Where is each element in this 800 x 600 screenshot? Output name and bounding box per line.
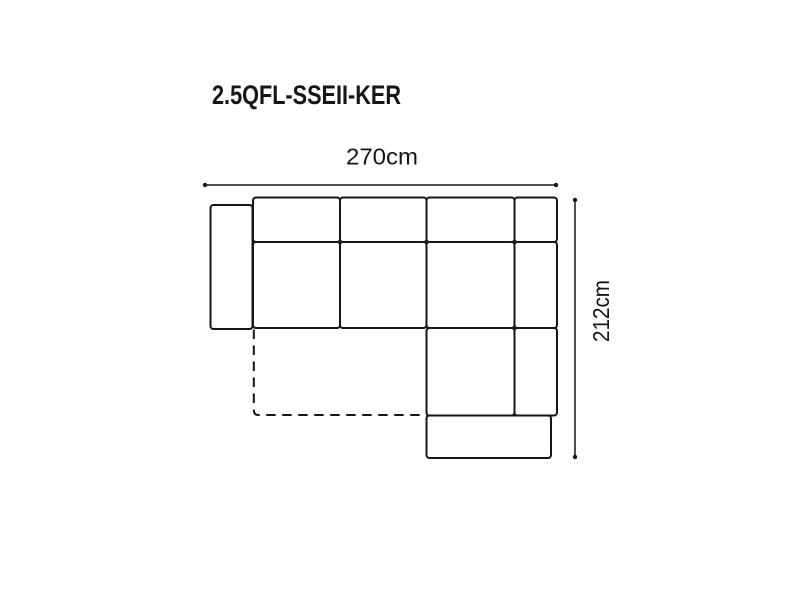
svg-text:212cm: 212cm	[588, 280, 614, 342]
svg-text:2.5QFL-SSEII-KER: 2.5QFL-SSEII-KER	[212, 80, 401, 110]
svg-text:270cm: 270cm	[346, 144, 418, 170]
